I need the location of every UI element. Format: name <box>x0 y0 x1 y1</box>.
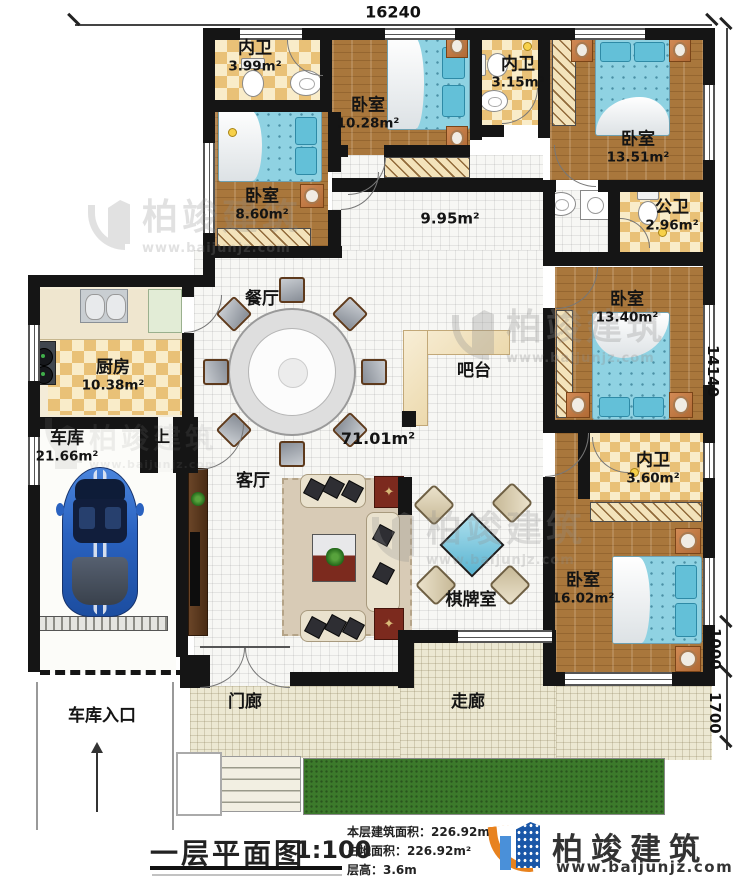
car <box>62 467 138 617</box>
wall-segment <box>543 420 715 433</box>
dining-chair <box>203 359 229 385</box>
driveway-edge <box>36 682 38 830</box>
room-label-kitchen: 厨房10.38m² <box>82 358 145 393</box>
dimension-right-lower-value: 1700 <box>706 692 724 734</box>
dining-chair <box>279 441 305 467</box>
window <box>703 443 715 478</box>
room-label-chess: 棋牌室 <box>446 591 497 611</box>
bed1-closet <box>384 157 470 178</box>
driveway-arrow-head <box>91 742 103 753</box>
brand-site: www.baijunjz.com <box>556 858 733 876</box>
room-label-corridor: 走廊 <box>451 693 485 713</box>
wall-segment <box>398 477 412 515</box>
porch-pillar <box>176 752 222 816</box>
dimension-line-top <box>75 24 712 26</box>
driveway-edge <box>172 682 174 830</box>
wall-segment <box>470 28 482 140</box>
wall-segment <box>384 145 470 157</box>
window <box>565 672 672 686</box>
window <box>28 325 40 381</box>
dimension-right-upper-value: 14140 <box>704 345 722 397</box>
bed4-nightstand-right <box>669 392 693 418</box>
wall-segment <box>182 333 194 419</box>
driveway-arrow-shaft <box>96 752 98 812</box>
kitchen-sink <box>80 289 128 323</box>
room-label-porch: 门廊 <box>228 693 262 713</box>
garage-door <box>38 616 168 631</box>
bar-pillar <box>402 411 416 427</box>
title-underline <box>150 866 342 870</box>
wall-segment <box>176 472 188 657</box>
wall-segment <box>470 125 504 137</box>
porch-steps <box>217 756 301 812</box>
window <box>703 85 715 160</box>
stat-land-area: 占地面积：226.92m² <box>347 842 495 861</box>
plan-stats: 本层建筑面积：226.92m² 占地面积：226.92m² 层高：3.6m <box>347 823 495 881</box>
bed3-nightstand <box>300 184 324 208</box>
tv <box>190 532 200 606</box>
bed2-nightstand-right <box>669 38 691 62</box>
brand-logo-icon <box>488 820 546 878</box>
bed3-closet <box>217 228 311 247</box>
stat-floor-height: 层高：3.6m <box>347 861 495 880</box>
room-label-bar: 吧台 <box>457 362 491 382</box>
floor-plan: 柏竣建筑 www.baijunjz.com 柏竣建筑 www.baijunjz.… <box>0 0 750 885</box>
room-label-bath2: 内卫3.15m² <box>491 55 544 90</box>
wall-segment <box>332 145 348 157</box>
room-label-living: 客厅 <box>236 472 270 492</box>
bed4-nightstand-left <box>566 392 590 418</box>
window <box>458 630 552 643</box>
room-label-bed2: 卧室13.51m² <box>607 130 670 165</box>
wall-segment <box>608 192 620 254</box>
window <box>385 28 455 40</box>
bed5-nightstand-bottom <box>675 646 701 672</box>
window <box>575 28 645 40</box>
dimension-line-right <box>726 28 728 750</box>
room-label-hallway: 9.95m² <box>420 210 479 227</box>
dimension-tick <box>67 13 80 26</box>
lawn <box>303 758 665 815</box>
washing-machine <box>580 190 610 220</box>
bed2-nightstand-left <box>571 38 593 62</box>
bed5-closet <box>590 502 702 522</box>
dimension-right-mid-value: 1000 <box>706 628 724 670</box>
dimension-top-value: 16240 <box>365 3 421 22</box>
wall-segment <box>203 246 342 258</box>
coffee-table-plant <box>326 548 344 566</box>
wall-segment <box>28 275 215 287</box>
wall-segment <box>543 477 555 630</box>
sofa-bottom <box>300 610 366 642</box>
room-label-garage: 车库21.66m² <box>36 429 99 464</box>
corridor-floor-right <box>556 686 712 760</box>
room-label-bath1: 内卫3.99m² <box>228 39 281 74</box>
garage-opening-dashed-line <box>40 670 186 675</box>
watermark-logo-icon <box>88 200 132 252</box>
sofa-right <box>366 512 400 612</box>
wall-segment <box>173 417 198 473</box>
room-label-bed4: 卧室13.40m² <box>596 290 659 325</box>
dining-table-turntable <box>278 358 308 388</box>
bath1-light <box>228 128 237 137</box>
bed5 <box>612 556 702 644</box>
room-label-pubbath: 公卫2.96m² <box>645 198 698 233</box>
bed2 <box>595 38 670 136</box>
bath2-light <box>523 42 532 51</box>
wall-segment <box>290 672 402 686</box>
room-label-garage-entry: 车库入口 <box>68 707 136 727</box>
cabinet-plant <box>191 492 205 506</box>
bed3 <box>218 108 322 182</box>
fridge <box>148 289 182 333</box>
window <box>203 143 215 233</box>
wall-segment <box>28 417 150 429</box>
stat-floor-area: 本层建筑面积：226.92m² <box>347 823 495 842</box>
room-label-dining: 餐厅 <box>245 290 279 310</box>
dining-chair <box>279 277 305 303</box>
window <box>703 558 715 625</box>
wall-segment <box>203 100 330 112</box>
porch-floor <box>190 686 400 758</box>
room-label-bed3: 卧室8.60m² <box>235 187 288 222</box>
room-label-stair-up: 上 <box>154 428 170 446</box>
wall-segment <box>543 192 555 266</box>
title-underline-shadow <box>152 874 342 876</box>
room-label-bed1: 卧室10.28m² <box>337 96 400 131</box>
wall-segment <box>543 252 715 266</box>
wall-segment <box>598 180 715 192</box>
wall-segment <box>543 308 555 430</box>
bed5-nightstand-top <box>675 528 701 554</box>
sofa-top <box>300 474 366 508</box>
room-label-bed5: 卧室16.02m² <box>552 571 615 606</box>
bed4 <box>592 312 670 420</box>
dining-chair <box>361 359 387 385</box>
room-label-bath3: 内卫3.60m² <box>626 451 679 486</box>
room-label-open-space: 71.01m² <box>341 430 415 448</box>
wall-segment <box>543 180 556 192</box>
door-arc <box>554 145 596 187</box>
